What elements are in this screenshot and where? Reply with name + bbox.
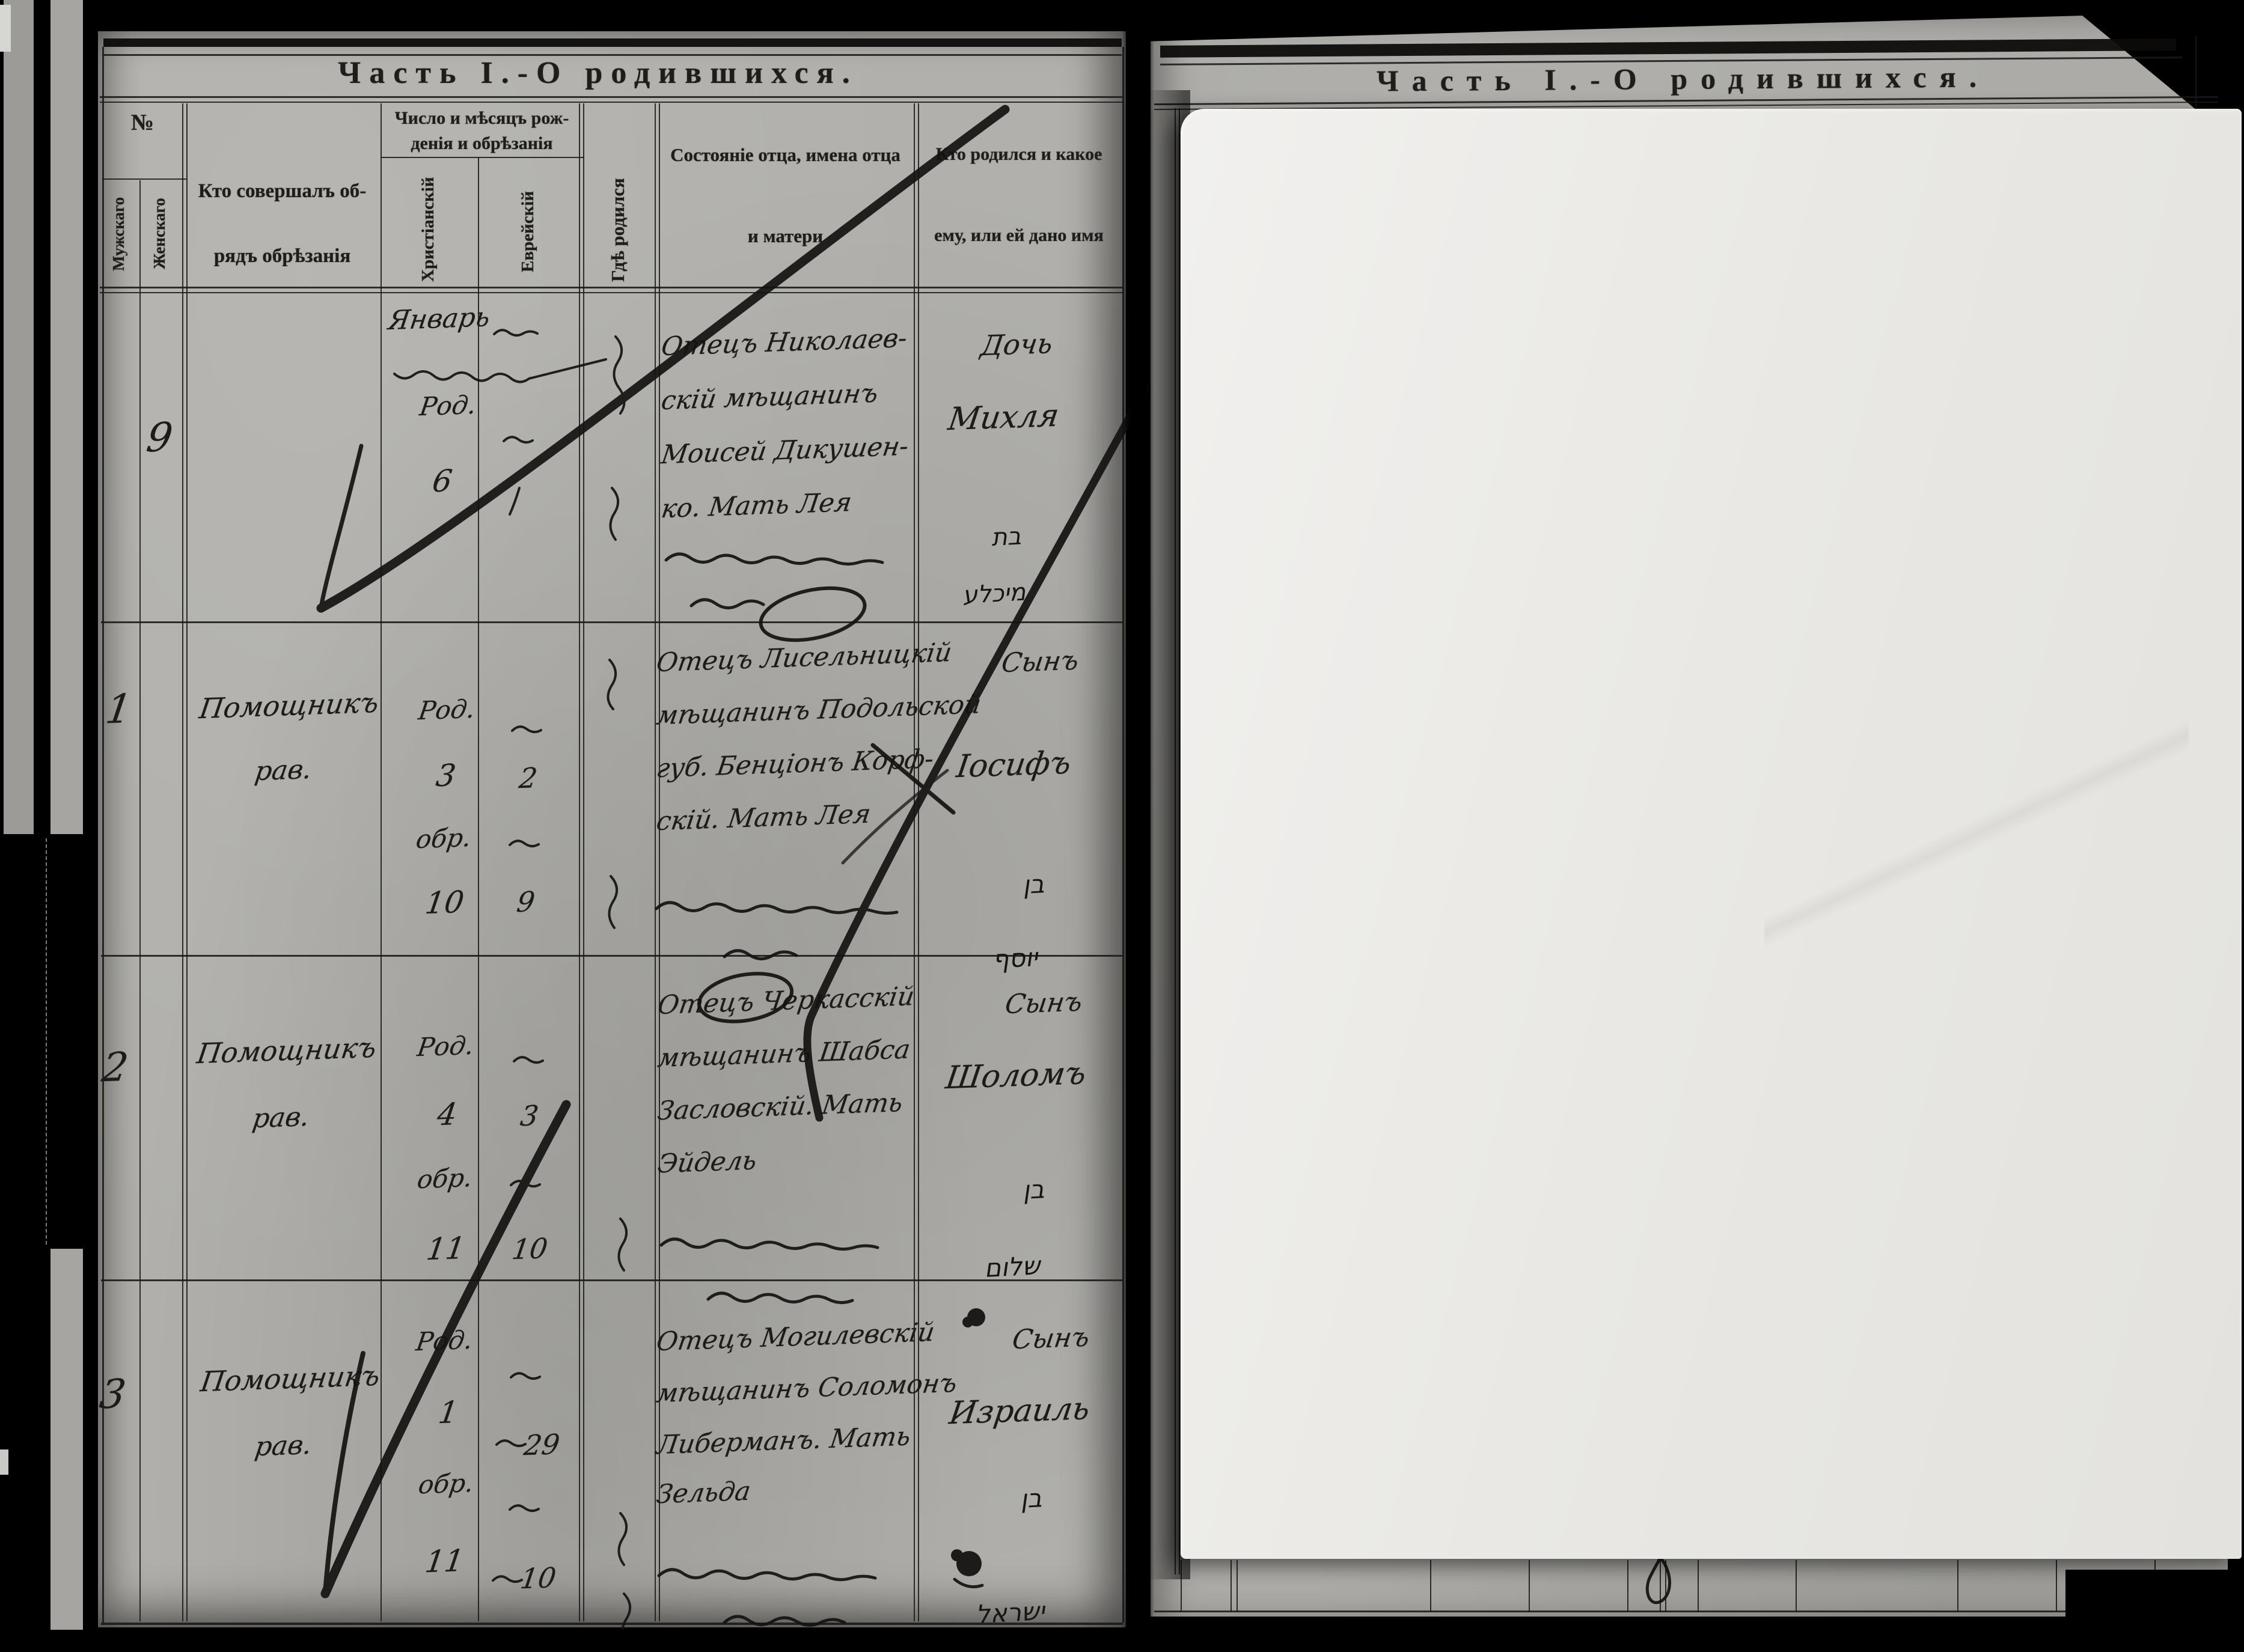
jewish-month-script (494, 330, 537, 335)
where-born-script (609, 876, 617, 928)
jewish-month-script (511, 1373, 540, 1379)
checkmark-stroke (325, 1105, 566, 1594)
hebrew-script-line (659, 1570, 875, 1580)
jewish-month-script (504, 437, 533, 442)
hebrew-script-line (724, 951, 796, 959)
photo-edge-black (1129, 1617, 2244, 1652)
where-born-script (619, 1219, 626, 1270)
right-page-flourish (1647, 1558, 1669, 1603)
hebrew-script-line (666, 554, 882, 564)
hebrew-script-line (708, 1293, 852, 1303)
checkmark-stroke (321, 446, 361, 607)
jewish-month-script (510, 488, 519, 514)
jewish-month-script (510, 841, 539, 846)
hebrew-script-line (661, 1239, 878, 1249)
signature-flourish (696, 967, 796, 1028)
signature-flourish (756, 580, 870, 649)
ink-blot-tail (955, 1579, 982, 1586)
where-born-script (608, 660, 616, 709)
long-diagonal-stroke (807, 388, 1146, 1118)
photo-edge-black (0, 1630, 1129, 1652)
checkmark-stroke (321, 109, 1005, 608)
jewish-month-script (514, 1057, 543, 1062)
ink-blot (951, 1308, 985, 1576)
where-born-script (610, 488, 618, 540)
where-born-script (619, 1513, 626, 1565)
jewish-month-script (512, 727, 541, 732)
hebrew-script-line (724, 1617, 845, 1626)
jewish-month-script (497, 1440, 525, 1446)
jewish-month-script (493, 1576, 522, 1582)
jewish-month-script (510, 1505, 539, 1511)
month-underline-squiggle (394, 359, 606, 382)
hebrew-script-line (691, 600, 763, 608)
paper-overlay-sheet (1181, 109, 2242, 1559)
scanned-register-spread: Часть I.-О родившихся. № Мужскаго Женска… (0, 0, 2244, 1652)
